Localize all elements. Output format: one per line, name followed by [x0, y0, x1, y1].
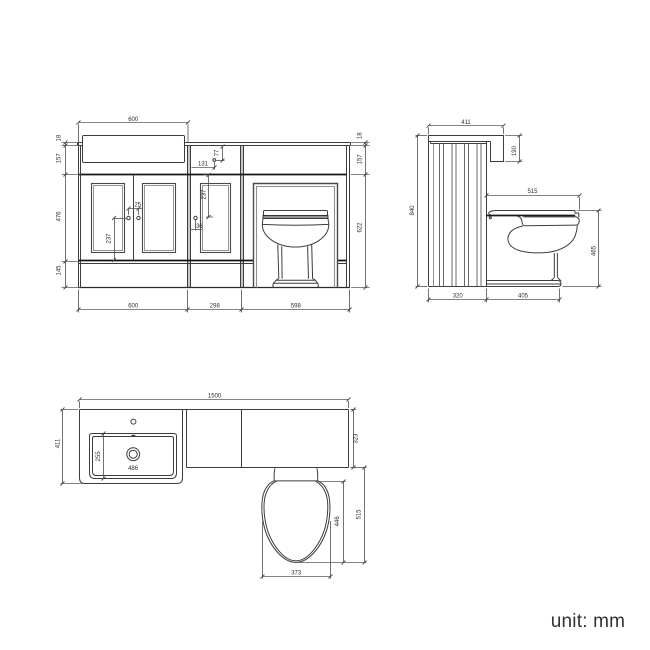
svg-text:600: 600: [128, 117, 139, 123]
svg-text:157: 157: [56, 153, 62, 164]
svg-text:unit: mm: unit: mm: [551, 611, 625, 632]
svg-text:237: 237: [202, 189, 208, 200]
svg-text:1500: 1500: [208, 394, 222, 400]
svg-text:446: 446: [335, 516, 341, 527]
svg-text:237: 237: [107, 233, 113, 244]
svg-text:145: 145: [56, 265, 62, 276]
svg-text:25: 25: [134, 202, 141, 208]
svg-text:515: 515: [527, 189, 538, 195]
svg-text:622: 622: [358, 222, 364, 233]
svg-text:36: 36: [196, 224, 203, 230]
svg-text:255: 255: [96, 451, 102, 462]
svg-text:476: 476: [56, 211, 62, 222]
svg-text:298: 298: [210, 303, 221, 309]
svg-text:157: 157: [358, 154, 364, 165]
svg-text:405: 405: [518, 293, 529, 299]
svg-text:373: 373: [291, 571, 302, 577]
svg-text:515: 515: [357, 509, 363, 520]
svg-text:411: 411: [55, 438, 61, 448]
svg-text:465: 465: [591, 245, 597, 256]
svg-text:840: 840: [410, 205, 416, 216]
svg-text:486: 486: [128, 466, 139, 472]
svg-text:323: 323: [354, 433, 360, 444]
svg-text:131: 131: [198, 162, 209, 168]
svg-text:77: 77: [215, 149, 221, 156]
svg-text:18: 18: [56, 134, 62, 141]
svg-text:18: 18: [358, 132, 364, 139]
svg-text:190: 190: [512, 145, 518, 156]
svg-text:598: 598: [291, 303, 302, 309]
svg-text:320: 320: [453, 293, 464, 299]
svg-text:411: 411: [461, 120, 471, 126]
svg-text:600: 600: [128, 303, 139, 309]
